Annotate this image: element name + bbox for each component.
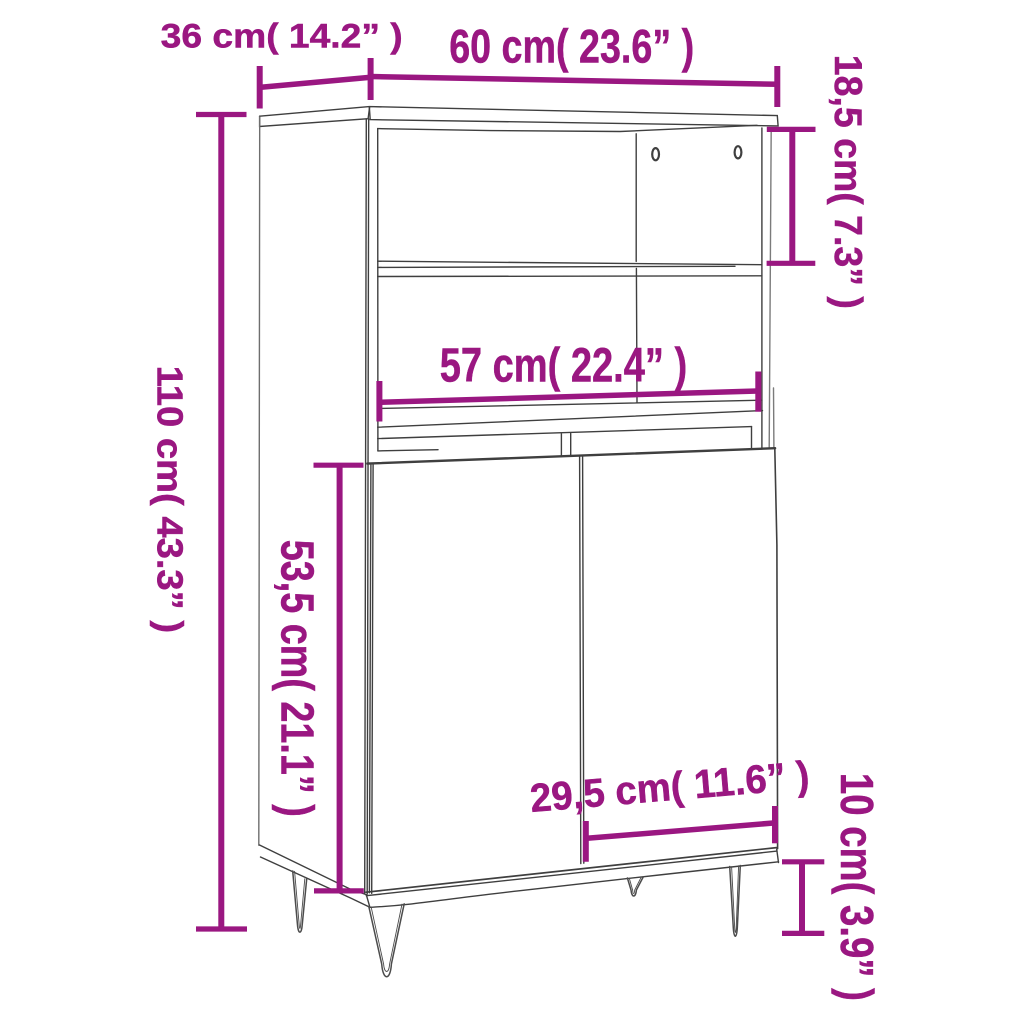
svg-text:10 cm( 3.9” ): 10 cm( 3.9” ) (831, 773, 883, 1001)
svg-text:57 cm( 22.4” ): 57 cm( 22.4” ) (440, 339, 688, 392)
svg-text:60 cm( 23.6” ): 60 cm( 23.6” ) (449, 20, 694, 73)
svg-text:18,5 cm( 7.3” ): 18,5 cm( 7.3” ) (826, 55, 869, 309)
svg-text:110 cm( 43.3” ): 110 cm( 43.3” ) (149, 366, 190, 633)
svg-text:53,5 cm( 21.1” ): 53,5 cm( 21.1” ) (272, 540, 324, 817)
svg-text:36 cm( 14.2” ): 36 cm( 14.2” ) (161, 17, 403, 55)
